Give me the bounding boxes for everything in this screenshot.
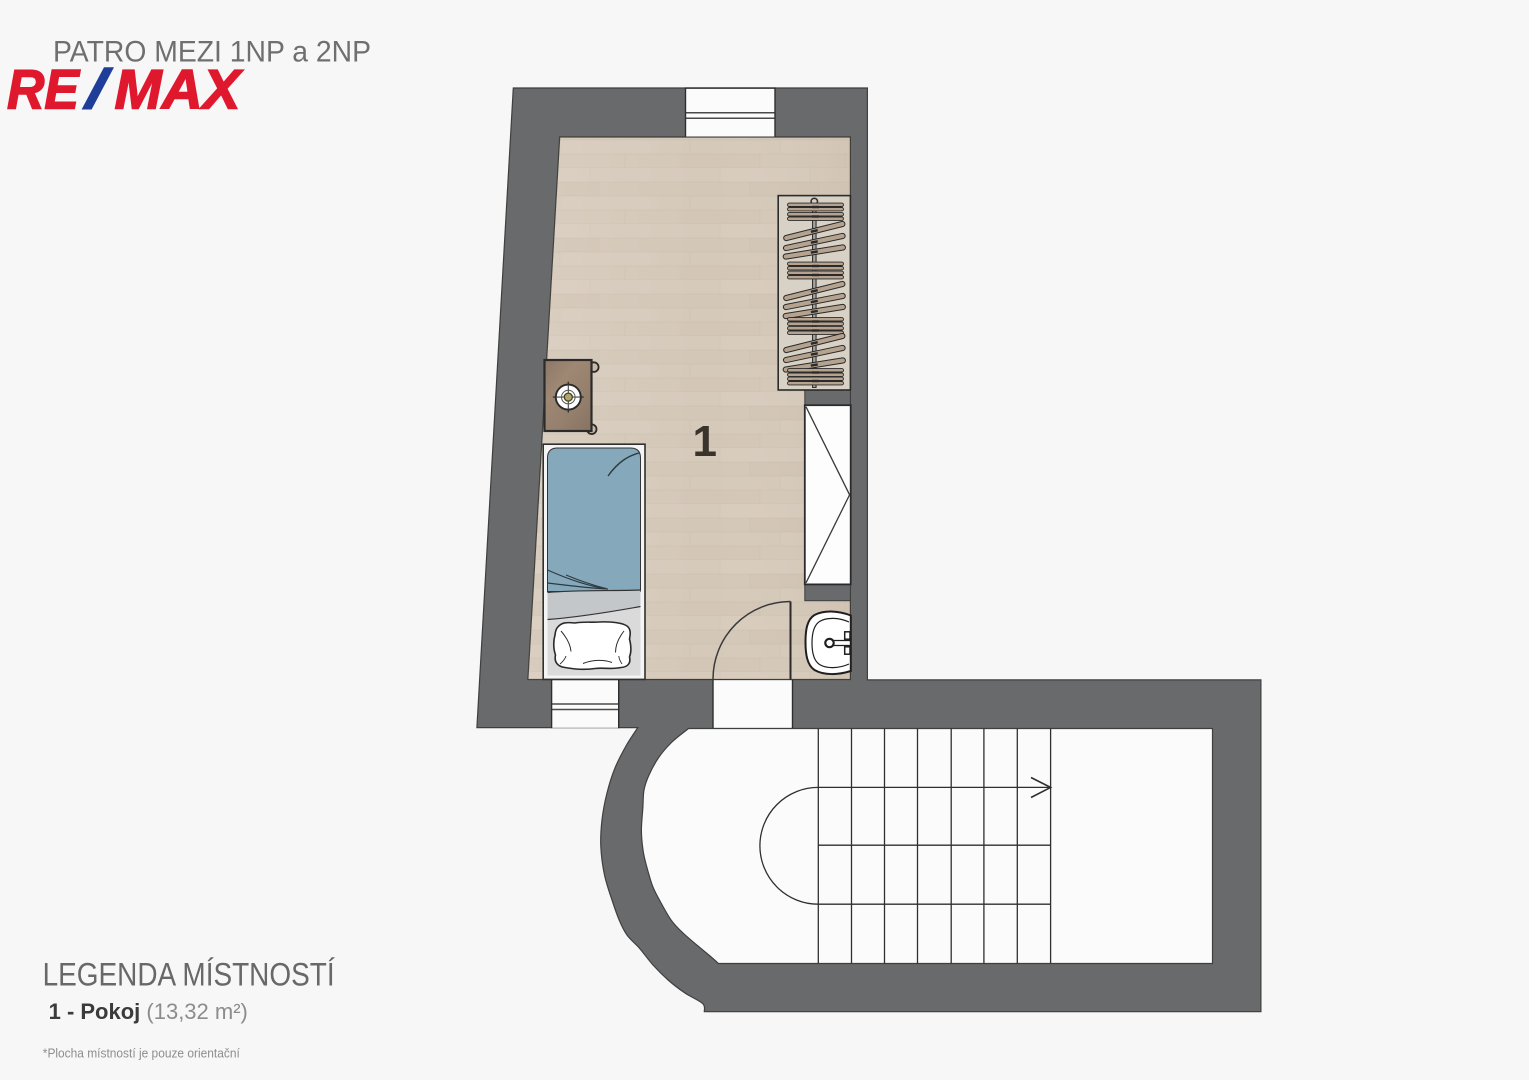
- svg-text:1 - Pokoj (13,32 m²): 1 - Pokoj (13,32 m²): [49, 999, 248, 1024]
- svg-text:RE: RE: [7, 57, 81, 120]
- svg-text:*Plocha místností je pouze ori: *Plocha místností je pouze orientační: [43, 1047, 240, 1061]
- svg-text:MAX: MAX: [115, 57, 245, 120]
- svg-text:1: 1: [693, 417, 717, 466]
- svg-text:LEGENDA MÍSTNOSTÍ: LEGENDA MÍSTNOSTÍ: [43, 957, 335, 993]
